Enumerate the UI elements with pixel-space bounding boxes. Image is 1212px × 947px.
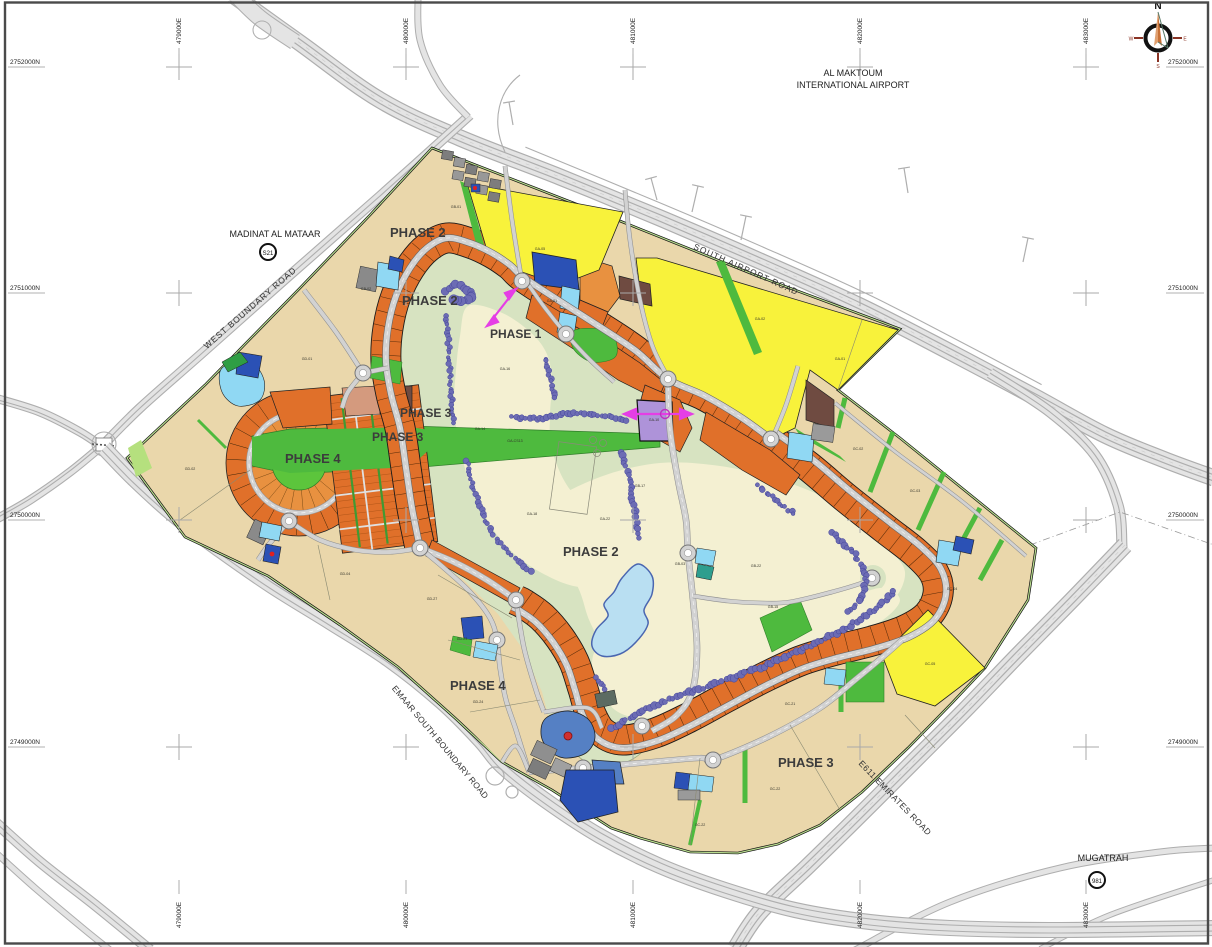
svg-text:GD-02: GD-02: [185, 467, 196, 471]
svg-text:PHASE 3: PHASE 3: [778, 755, 834, 770]
svg-text:PHASE 4: PHASE 4: [285, 451, 341, 466]
svg-text:W: W: [1129, 37, 1134, 43]
svg-text:481000E: 481000E: [630, 17, 637, 44]
svg-text:GA-05: GA-05: [535, 247, 545, 251]
svg-text:MADINAT AL MATAAR: MADINAT AL MATAAR: [229, 229, 321, 239]
svg-text:GD-27: GD-27: [427, 597, 438, 601]
svg-text:2751000N: 2751000N: [10, 285, 40, 292]
svg-text:GC-21: GC-21: [785, 702, 796, 706]
svg-text:2750000N: 2750000N: [1168, 512, 1198, 519]
svg-text:GA-16: GA-16: [500, 367, 510, 371]
svg-text:PHASE 2: PHASE 2: [402, 293, 458, 308]
svg-text:481000E: 481000E: [630, 901, 637, 928]
svg-text:2749000N: 2749000N: [1168, 739, 1198, 746]
svg-text:GA-18: GA-18: [527, 512, 537, 516]
svg-text:GB-03: GB-03: [675, 562, 685, 566]
svg-text:GD-01: GD-01: [302, 357, 313, 361]
svg-text:S21: S21: [263, 251, 274, 257]
svg-text:GC-04: GC-04: [947, 587, 958, 591]
svg-text:PHASE 4: PHASE 4: [450, 678, 506, 693]
svg-text:GA-01: GA-01: [547, 299, 557, 303]
svg-text:GA-14: GA-14: [475, 427, 485, 431]
svg-text:GA-22: GA-22: [600, 517, 610, 521]
svg-text:PHASE 2: PHASE 2: [390, 225, 446, 240]
svg-text:GA-10: GA-10: [649, 418, 659, 422]
svg-text:GB-17: GB-17: [635, 484, 645, 488]
svg-text:2750000N: 2750000N: [10, 512, 40, 519]
svg-text:AL MAKTOUM: AL MAKTOUM: [823, 68, 882, 78]
svg-text:483000E: 483000E: [1083, 17, 1090, 44]
svg-text:479000E: 479000E: [176, 901, 183, 928]
svg-text:GC-03: GC-03: [910, 489, 921, 493]
svg-text:GA-01: GA-01: [835, 357, 845, 361]
svg-text:GB-15: GB-15: [768, 605, 778, 609]
svg-text:PHASE 2: PHASE 2: [563, 544, 619, 559]
svg-text:GA-CS13: GA-CS13: [507, 439, 522, 443]
svg-text:981: 981: [1092, 879, 1103, 885]
svg-text:GD-04: GD-04: [340, 572, 351, 576]
svg-text:483000E: 483000E: [1083, 901, 1090, 928]
svg-text:482000E: 482000E: [857, 901, 864, 928]
svg-text:GA-02: GA-02: [755, 317, 765, 321]
svg-text:2752000N: 2752000N: [1168, 59, 1198, 66]
svg-text:2749000N: 2749000N: [10, 739, 40, 746]
svg-text:GC-22: GC-22: [695, 823, 706, 827]
svg-text:GD-23: GD-23: [457, 637, 468, 641]
svg-text:2752000N: 2752000N: [10, 59, 40, 66]
svg-text:GC-02: GC-02: [853, 447, 864, 451]
svg-text:480000E: 480000E: [403, 17, 410, 44]
svg-text:479000E: 479000E: [176, 17, 183, 44]
svg-text:GD-24: GD-24: [473, 700, 484, 704]
svg-text:480000E: 480000E: [403, 901, 410, 928]
svg-text:GB-02: GB-02: [361, 287, 371, 291]
svg-text:PHASE 3: PHASE 3: [400, 406, 452, 420]
svg-text:GC-22: GC-22: [770, 787, 781, 791]
svg-text:GB-01: GB-01: [451, 205, 461, 209]
svg-text:GC-05: GC-05: [925, 662, 936, 666]
svg-text:2751000N: 2751000N: [1168, 285, 1198, 292]
svg-text:482000E: 482000E: [857, 17, 864, 44]
svg-text:INTERNATIONAL AIRPORT: INTERNATIONAL AIRPORT: [797, 80, 910, 90]
svg-text:GB-22: GB-22: [751, 564, 761, 568]
svg-text:PHASE 1: PHASE 1: [490, 327, 542, 341]
svg-text:PHASE 3: PHASE 3: [372, 430, 424, 444]
svg-text:MUGATRAH: MUGATRAH: [1078, 853, 1129, 863]
